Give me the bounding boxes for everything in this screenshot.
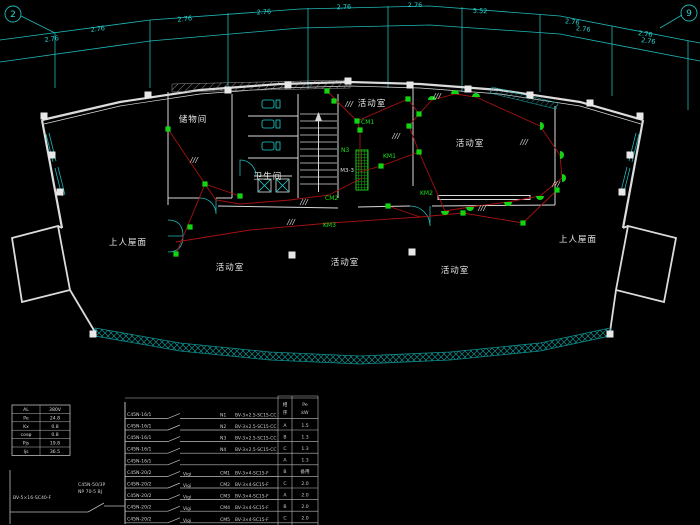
wall-light-icon xyxy=(428,96,436,100)
branch-pe: 2.0 xyxy=(301,481,308,487)
branch-pe: 2.0 xyxy=(301,516,308,522)
branch-breaker-switch xyxy=(168,448,180,453)
branch-breaker-switch xyxy=(168,460,180,465)
tick-mark xyxy=(193,157,196,163)
column-icon xyxy=(285,82,292,89)
branch-phase: C xyxy=(283,481,286,487)
floor-plan-drawing: 2 9 2.762.762.762.762.765.522.762.762.76… xyxy=(0,0,700,525)
branch-breaker-label: C45N-16/1 xyxy=(127,435,152,441)
branch-breaker-switch xyxy=(168,483,180,488)
room-label-activity-room-3: 活动室 xyxy=(216,262,245,273)
branch-breaker-switch xyxy=(168,425,180,430)
branch-breaker-switch xyxy=(168,437,180,442)
branch-wire-spec: BV-3×2.5-SC15-CC xyxy=(235,447,276,453)
phase-header: 序 xyxy=(283,409,288,416)
tick-mark xyxy=(345,101,348,107)
wire xyxy=(168,129,205,254)
column-icon xyxy=(57,189,64,196)
door-arc xyxy=(168,236,183,252)
dimension-label: 2.76 xyxy=(337,3,352,12)
branch-circuit-id: CM5 xyxy=(220,517,230,523)
branch-wire-spec: BV-3×2.5-SC15-CC xyxy=(235,424,276,430)
tick-mark xyxy=(397,133,400,139)
load-table-key: Ijs xyxy=(23,449,29,455)
branch-circuit-id: N4 xyxy=(220,447,226,453)
branch-breaker-label: C45N-16/1 xyxy=(127,424,152,430)
room-label-storage-room: 储物间 xyxy=(179,114,208,125)
branch-phase: B xyxy=(283,434,286,440)
column-icon xyxy=(409,249,416,256)
column-icon xyxy=(637,113,644,120)
stairs xyxy=(300,112,337,192)
stairs-direction-arrow xyxy=(315,112,322,121)
curved-parapet-band xyxy=(95,328,610,364)
branch-circuit-id: CM3 xyxy=(220,494,230,500)
tick-mark xyxy=(287,219,290,225)
plan-circuit-label: CM1 xyxy=(361,119,374,126)
wire xyxy=(176,190,557,242)
branch-rcd-label: Vigi xyxy=(183,518,191,524)
column-icon xyxy=(90,331,97,338)
ceiling-light-icon xyxy=(405,96,410,101)
branch-phase: A xyxy=(283,492,287,498)
main-breaker-label: C45N-50/3P xyxy=(78,482,105,488)
plan-circuit-label: KM3 xyxy=(323,222,336,229)
column-icon xyxy=(465,86,472,93)
ceiling-light-icon xyxy=(357,127,362,132)
branch-rcd-label: Vigi xyxy=(183,483,191,489)
dimension-label: 2.76 xyxy=(576,24,591,33)
column-icon xyxy=(225,87,232,94)
windows xyxy=(46,133,639,196)
column-icon xyxy=(145,92,152,99)
room-label-activity-room-5: 活动室 xyxy=(441,265,470,276)
tick-mark xyxy=(190,157,193,163)
ceiling-light-icon xyxy=(378,163,383,168)
branch-rcd-label: Vigi xyxy=(183,471,191,477)
tick-mark xyxy=(525,139,528,145)
ceiling-light-icon xyxy=(173,251,178,256)
ceiling-light-icon xyxy=(324,88,329,93)
wall-light-icon xyxy=(466,207,474,211)
ceiling-light-icon xyxy=(165,126,170,131)
building-outline xyxy=(12,82,676,332)
ceiling-light-icon xyxy=(406,123,411,128)
room-label-activity-room-4: 活动室 xyxy=(331,257,360,268)
column-icon xyxy=(49,152,56,159)
ceiling-light-icon xyxy=(237,193,242,198)
branch-pe: 1.3 xyxy=(301,458,308,464)
load-table-key: Kx xyxy=(23,424,29,430)
tick-mark xyxy=(303,199,306,205)
ceiling-light-icon xyxy=(385,203,390,208)
column-icon xyxy=(289,252,296,259)
branch-circuit-id: CM1 xyxy=(220,470,230,476)
branch-phase: C xyxy=(283,446,286,452)
branch-circuit-id: N1 xyxy=(220,412,226,418)
branch-breaker-switch xyxy=(168,413,180,418)
room-label-roof-terrace-left: 上人屋面 xyxy=(109,238,147,248)
branch-pe: 1.3 xyxy=(301,446,308,452)
room-label-activity-room-2: 活动室 xyxy=(456,138,485,149)
column-icon xyxy=(619,189,626,196)
branch-circuit-id: CM4 xyxy=(220,505,230,511)
load-table-value: 24.8 xyxy=(50,415,60,421)
ceiling-light-icon xyxy=(460,210,465,215)
plan-circuit-label: CM2 xyxy=(325,195,338,202)
wire xyxy=(419,94,562,211)
pe-header-unit: kW xyxy=(301,410,309,416)
wire xyxy=(327,91,357,121)
load-table-value: 380V xyxy=(49,407,62,413)
branch-circuit-id: N3 xyxy=(220,436,226,442)
load-table-key: AL xyxy=(23,407,29,413)
branch-breaker-label: C45N-20/2 xyxy=(127,505,152,511)
plan-circuit-label: KM1 xyxy=(383,153,396,160)
branch-breaker-switch xyxy=(168,506,180,511)
ceiling-light-icon xyxy=(202,181,207,186)
toilet-icon xyxy=(262,100,274,108)
branch-breaker-label: C45N-20/2 xyxy=(127,493,152,499)
columns xyxy=(41,78,644,338)
branch-breaker-label: C45N-20/2 xyxy=(127,516,152,522)
incoming-cable-label: BV-5×16-SC40-F xyxy=(13,495,51,501)
phase-header: 相 xyxy=(283,401,288,408)
branch-phase: A xyxy=(283,458,287,464)
branch-phase: B xyxy=(283,469,286,475)
room-label-bathroom: 卫生间 xyxy=(254,171,283,182)
distribution-box-label: M3-3 xyxy=(340,168,354,174)
column-icon xyxy=(607,331,614,338)
ceiling-light-icon xyxy=(416,149,421,154)
load-table-value: 36.5 xyxy=(50,449,60,455)
toilet-icon xyxy=(262,142,274,150)
wall-light-icon xyxy=(536,196,544,200)
branch-wire-spec: BV-3×4-SC15-F xyxy=(235,505,269,511)
branch-rcd-label: Vigi xyxy=(183,506,191,512)
branch-pe: 2.0 xyxy=(301,504,308,510)
dimension-label: 2.76 xyxy=(641,36,656,46)
load-table-value: 0.8 xyxy=(51,432,58,438)
branch-phase: B xyxy=(283,504,286,510)
axis-number-left: 2 xyxy=(10,10,16,20)
branch-phase: C xyxy=(283,516,286,522)
dimension-labels: 2.762.762.762.762.765.522.762.762.762.76… xyxy=(44,1,656,46)
load-table-key: Pjs xyxy=(23,441,30,447)
branch-pe: 备用 xyxy=(300,468,310,475)
ceiling-light-icon xyxy=(554,187,559,192)
branch-pe: 1.3 xyxy=(301,434,308,440)
room-labels: 储物间卫生间活动室活动室活动室活动室活动室上人屋面上人屋面 xyxy=(109,98,597,276)
main-breaker-switch xyxy=(88,503,104,512)
branch-breaker-label: C45N-16/1 xyxy=(127,412,152,418)
column-icon xyxy=(527,92,534,99)
branch-wire-spec: BV-3×2.5-SC15-CC xyxy=(235,412,276,418)
tick-mark xyxy=(300,199,303,205)
dimension-label: 5.52 xyxy=(473,7,488,16)
tick-mark xyxy=(292,219,295,225)
tick-mark xyxy=(195,157,198,163)
tick-mark xyxy=(520,139,523,145)
wire xyxy=(205,184,240,196)
load-table: AL380VPe24.8Kx0.8cosφ0.8Pjs19.8Ijs36.5 xyxy=(12,405,70,455)
door-arc xyxy=(200,198,216,214)
branch-wire-spec: BV-3×4-SC15-F xyxy=(235,482,269,488)
branch-pe: 2.0 xyxy=(301,492,308,498)
top-glass-band xyxy=(172,80,350,92)
branch-wire-spec: BV-3×4-SC15-F xyxy=(235,517,269,523)
dimension-label: 2.76 xyxy=(177,14,192,23)
dimension-label: 2.76 xyxy=(90,24,105,34)
ceiling-light-icon xyxy=(331,98,336,103)
branch-breaker-switch xyxy=(168,518,180,523)
wall-light-icon xyxy=(560,151,564,159)
branch-pe: 1.5 xyxy=(301,423,308,429)
branch-wire-spec: BV-3×2.5-SC15-CC xyxy=(235,436,276,442)
column-icon xyxy=(407,82,414,89)
wire xyxy=(388,206,420,217)
branch-wire-spec: BV-3×4-SC15-F xyxy=(235,470,269,476)
plan-circuit-label: N3 xyxy=(341,147,349,154)
branch-circuit-id: N2 xyxy=(220,424,226,430)
dimension-label: 2.76 xyxy=(256,8,271,17)
load-table-key: Pe xyxy=(23,415,29,421)
axis-number-right: 9 xyxy=(686,9,692,19)
dimension-grid xyxy=(0,6,700,110)
load-table-value: 19.8 xyxy=(50,441,60,447)
column-icon xyxy=(345,78,352,85)
column-icon xyxy=(587,100,594,107)
branch-breaker-switch xyxy=(168,471,180,476)
wall-light-icon xyxy=(562,174,566,182)
load-table-value: 0.8 xyxy=(51,424,58,430)
panel-schedule: C45N-50/3PNP 70-5 BJBV-5×16-SC40-F相序PekW… xyxy=(10,396,318,525)
tick-mark xyxy=(305,199,308,205)
distribution-box: M3-3 xyxy=(340,150,368,190)
pe-header: Pe xyxy=(302,402,308,408)
branch-breaker-label: C45N-20/2 xyxy=(127,470,152,476)
room-label-roof-terrace-right: 上人屋面 xyxy=(559,235,597,245)
branch-breaker-label: C45N-16/1 xyxy=(127,458,152,464)
door-arc xyxy=(168,220,183,236)
circuit-labels: CM1KM1N3KM2CM2KM3 xyxy=(323,119,433,229)
branch-rcd-label: Vigi xyxy=(183,495,191,501)
wall-light-icon xyxy=(540,122,544,130)
tick-mark xyxy=(290,219,293,225)
ceiling-light-icon xyxy=(416,111,421,116)
ceiling-light-icon xyxy=(187,224,192,229)
ceiling-light-icon xyxy=(354,118,359,123)
cad-canvas: 2 9 2.762.762.762.762.765.522.762.762.76… xyxy=(0,0,700,525)
tick-mark xyxy=(395,133,398,139)
branch-phase: A xyxy=(283,423,287,429)
wall-light-icon xyxy=(472,93,480,97)
column-icon xyxy=(627,152,634,159)
column-icon xyxy=(41,113,48,120)
main-breaker-label2: NP 70-5 BJ xyxy=(78,489,102,495)
tick-mark xyxy=(523,139,526,145)
tick-mark xyxy=(350,101,353,107)
dimension-label: 2.76 xyxy=(408,1,422,9)
tick-mark xyxy=(392,133,395,139)
branch-circuit-id: CM2 xyxy=(220,482,230,488)
branch-breaker-label: C45N-16/1 xyxy=(127,447,152,453)
tick-mark xyxy=(348,101,351,107)
branch-wire-spec: BV-3×4-SC15-F xyxy=(235,494,269,500)
load-table-key: cosφ xyxy=(21,433,32,438)
toilet-icon xyxy=(262,120,274,128)
room-label-activity-room-1: 活动室 xyxy=(358,98,387,109)
plan-circuit-label: KM2 xyxy=(420,190,433,197)
branch-breaker-label: C45N-20/2 xyxy=(127,482,152,488)
branch-breaker-switch xyxy=(168,495,180,500)
dimension-label: 2.76 xyxy=(44,34,59,44)
ceiling-light-icon xyxy=(520,220,525,225)
